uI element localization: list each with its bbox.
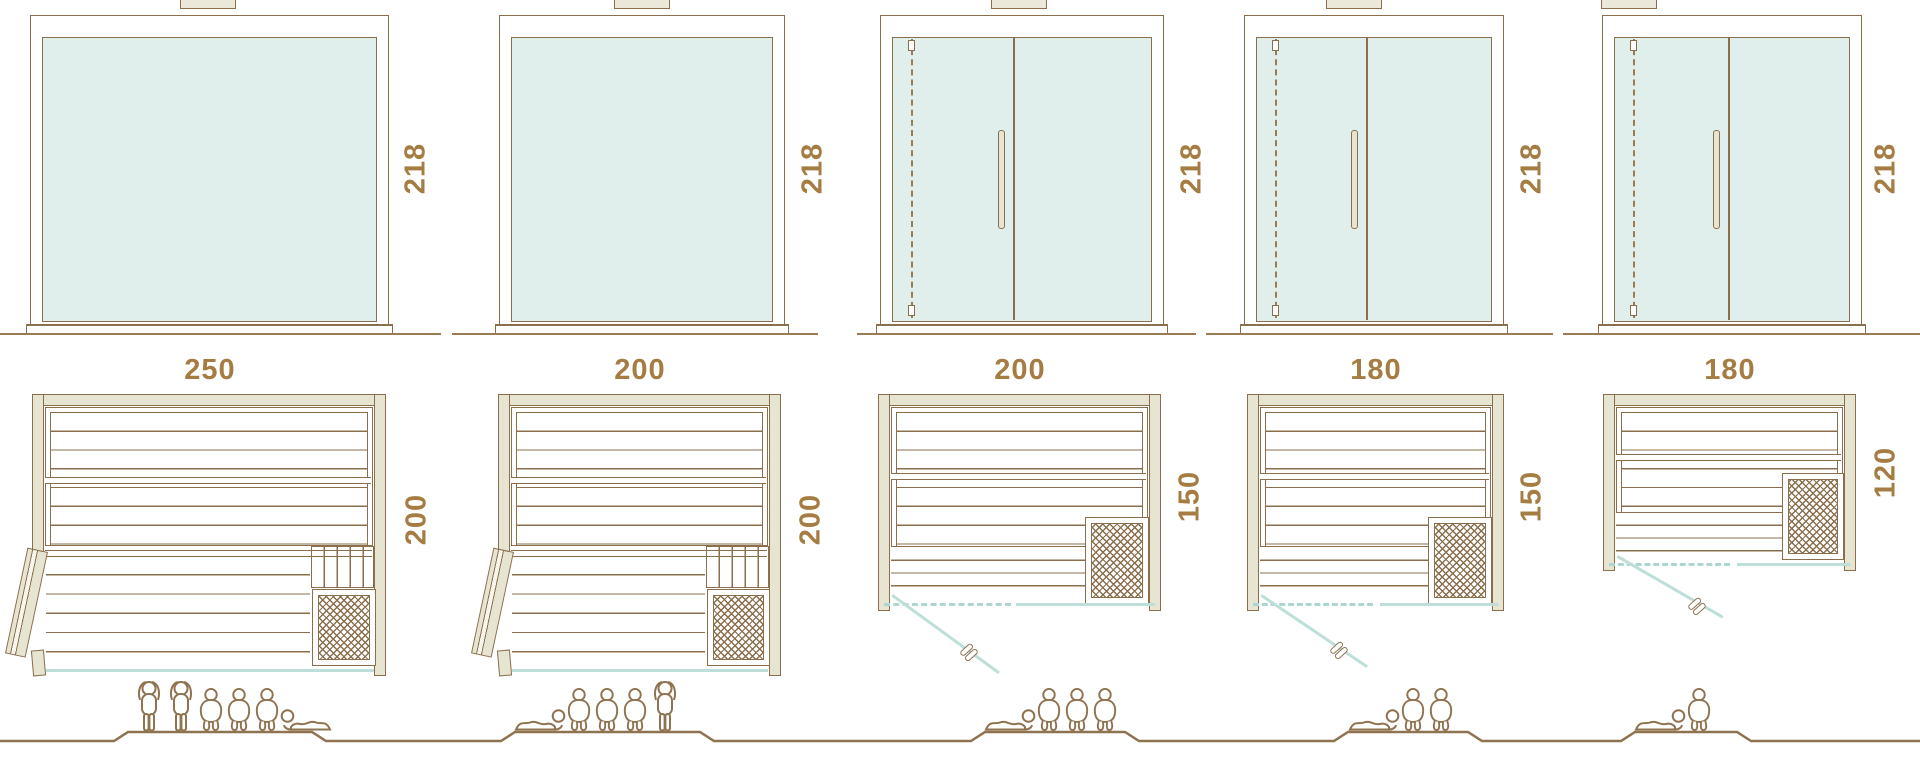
sauna-3-width-label: 200 [960, 354, 1080, 387]
sauna-3-capacity-icons [984, 680, 1118, 732]
lying-person-icon [1348, 708, 1400, 732]
sauna-4-width-label: 180 [1316, 354, 1436, 387]
sauna-3-plan-heater [1085, 517, 1149, 604]
sauna-5-ground-line [1563, 333, 1920, 335]
sauna-2-plan-wall-left [498, 394, 510, 552]
sitting-person-icon [1090, 688, 1120, 732]
sauna-2-plan-glass-front [512, 669, 768, 672]
sauna-2-plan-door-post [497, 649, 512, 676]
sauna-5-height-label: 218 [1870, 124, 1903, 214]
sauna-5-plan-bench-edge [1616, 454, 1841, 461]
sauna-2-plan-wall-top [498, 394, 781, 406]
sitting-person-icon [592, 688, 622, 732]
sauna-2-roof-vent [614, 0, 670, 9]
sauna-2-plan-wall-right [769, 394, 781, 676]
sauna-4-plan-wall-top [1247, 394, 1504, 406]
sauna-2-plan-bench-end [706, 546, 769, 588]
sauna-4-plan-heater-grate [1434, 523, 1486, 598]
sauna-5-door-hinge-top [1630, 40, 1637, 51]
sauna-1-glass-front [42, 37, 377, 322]
sauna-1-capacity-icons [132, 680, 330, 732]
sauna-1-plan-wall-left [32, 394, 44, 552]
sauna-2-plan-floor-slats [512, 556, 705, 668]
sauna-5-glass-front [1614, 37, 1850, 322]
sauna-5-roof-vent [1601, 0, 1657, 9]
sauna-3-door-handle [998, 130, 1005, 229]
sauna-5-depth-label: 120 [1870, 428, 1903, 518]
sauna-1-depth-label: 200 [401, 475, 434, 565]
sauna-1-width-label: 250 [150, 354, 270, 387]
sauna-1-plan-door-open [5, 548, 48, 658]
lying-person-icon [984, 708, 1036, 732]
sauna-2-capacity-icons [514, 680, 680, 732]
sauna-1-plan-bench-edge [45, 477, 371, 484]
sauna-1-plan-glass-front [46, 669, 374, 672]
sauna-5-plan-wall-left [1603, 394, 1615, 571]
sauna-4-plan-floor-slats [1260, 548, 1428, 593]
sauna-4-door-hinge-line [1275, 39, 1277, 318]
sauna-3-plan-wall-top [878, 394, 1161, 406]
sauna-3-door-split-line [1013, 37, 1015, 320]
sauna-4-plan-glass-front [1380, 603, 1498, 606]
standing-person-icon [132, 680, 166, 732]
sauna-1-plan-heater [312, 589, 376, 666]
sauna-4-height-label: 218 [1516, 124, 1549, 214]
sauna-2-width-label: 200 [580, 354, 700, 387]
sauna-2-plan-door-open [471, 548, 514, 658]
sauna-5-plan-wall-right [1844, 394, 1856, 571]
sitting-person-icon [224, 688, 254, 732]
sauna-1-plan-door-post [31, 649, 46, 676]
lying-person-icon [514, 708, 566, 732]
sitting-person-icon [620, 688, 650, 732]
sauna-4-depth-label: 150 [1516, 452, 1549, 542]
sauna-5-door-handle [1713, 130, 1720, 229]
sauna-1-ground-line [0, 333, 441, 335]
sauna-3-plan-wall-left [878, 394, 890, 611]
sauna-5-plan-heater [1782, 473, 1844, 560]
sauna-3-door-hinge-top [908, 40, 915, 51]
sauna-3-door-hinge-line [911, 39, 913, 318]
sauna-4-plan-heater [1428, 517, 1492, 604]
standing-person-icon [648, 680, 682, 732]
sauna-3-plan-floor-slats [891, 548, 1085, 593]
sauna-4-roof-vent [1326, 0, 1382, 9]
sitting-person-icon [564, 688, 594, 732]
sauna-1-plan-bench-end [311, 546, 374, 588]
standing-person-icon [164, 680, 198, 732]
sauna-5-door-hinge-bottom [1630, 305, 1637, 316]
sauna-1-plan-floor-slats [46, 556, 310, 668]
sitting-person-icon [1426, 688, 1456, 732]
lying-person-icon [1634, 708, 1686, 732]
sauna-2-ground-line [452, 333, 818, 335]
sauna-3-door-hinge-bottom [908, 305, 915, 316]
sitting-person-icon [1398, 688, 1428, 732]
sauna-4-plan-wall-left [1247, 394, 1259, 611]
sauna-2-plan-heater [707, 589, 770, 666]
sauna-4-plan-wall-right [1492, 394, 1504, 611]
sauna-5-width-label: 180 [1670, 354, 1790, 387]
sauna-3-roof-vent [991, 0, 1047, 9]
sauna-5-door-split-line [1728, 37, 1730, 320]
sauna-4-plan-bench-edge [1260, 473, 1489, 480]
sauna-5-door-hinge-line [1633, 39, 1635, 318]
sauna-size-comparison-diagram: 218 250 200 218 200 200 [0, 0, 1920, 770]
sauna-4-glass-front [1256, 37, 1492, 322]
sauna-2-plan-heater-grate [713, 595, 764, 660]
sauna-4-door-split-line [1366, 37, 1368, 320]
sauna-2-depth-label: 200 [795, 475, 828, 565]
sitting-person-icon [1034, 688, 1064, 732]
sauna-5-plan-glass-front [1737, 563, 1850, 566]
sauna-2-glass-front [511, 37, 773, 322]
sauna-4-door-hinge-top [1272, 40, 1279, 51]
sitting-person-icon [1684, 688, 1714, 732]
sauna-4-door-hinge-bottom [1272, 305, 1279, 316]
sauna-3-depth-label: 150 [1174, 452, 1207, 542]
sauna-5-plan-wall-top [1603, 394, 1856, 406]
sitting-person-icon [1062, 688, 1092, 732]
sauna-3-plan-heater-grate [1091, 523, 1143, 598]
sitting-person-icon [252, 688, 282, 732]
sauna-1-plan-wall-top [32, 394, 386, 406]
sauna-3-height-label: 218 [1176, 124, 1209, 214]
sauna-5-capacity-icons [1634, 680, 1712, 732]
sauna-3-plan-door-open-line [891, 594, 1000, 674]
sauna-3-ground-line [857, 333, 1196, 335]
sauna-5-plan-heater-grate [1788, 479, 1838, 554]
sauna-1-height-label: 218 [400, 124, 433, 214]
sauna-4-capacity-icons [1348, 680, 1454, 732]
sauna-1-roof-vent [180, 0, 236, 9]
sauna-5-plan-floor-slats [1616, 513, 1782, 555]
sauna-4-ground-line [1206, 333, 1553, 335]
sauna-1-plan-heater-grate [318, 595, 370, 660]
sauna-4-door-handle [1351, 130, 1358, 229]
sauna-3-plan-glass-front [1016, 603, 1155, 606]
sauna-2-height-label: 218 [797, 124, 830, 214]
sauna-3-plan-bench-edge [891, 473, 1146, 480]
lying-person-icon [280, 708, 332, 732]
sitting-person-icon [196, 688, 226, 732]
sauna-3-plan-wall-right [1149, 394, 1161, 611]
sauna-2-plan-bench-edge [511, 477, 766, 484]
sauna-3-glass-front [892, 37, 1152, 322]
